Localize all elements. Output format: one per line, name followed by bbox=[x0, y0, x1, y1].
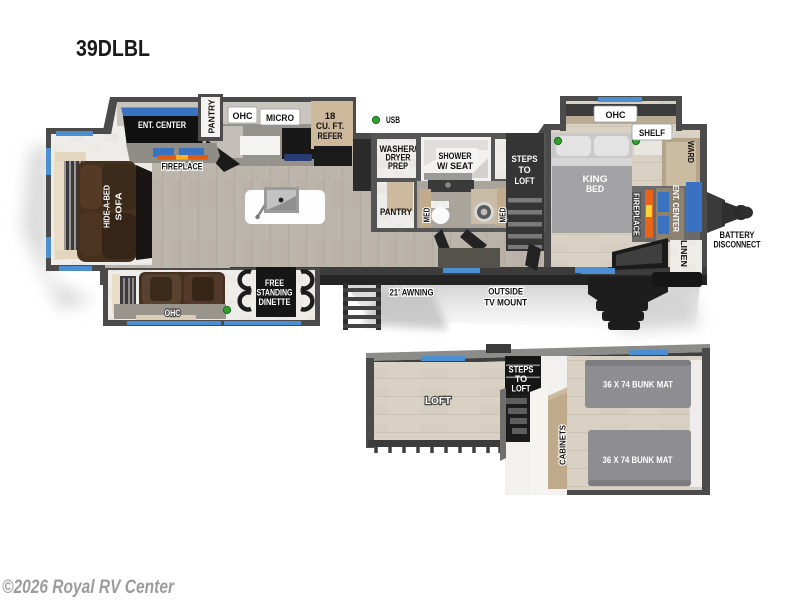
svg-text:FREE: FREE bbox=[265, 278, 284, 288]
svg-text:36 X 74 BUNK MAT: 36 X 74 BUNK MAT bbox=[603, 380, 673, 391]
svg-text:PANTRY: PANTRY bbox=[380, 207, 413, 218]
svg-text:TO: TO bbox=[518, 165, 530, 175]
svg-text:LOFT: LOFT bbox=[515, 176, 535, 186]
svg-text:MICRO: MICRO bbox=[266, 113, 294, 123]
svg-text:LINEN: LINEN bbox=[679, 240, 689, 267]
svg-text:CABINETS: CABINETS bbox=[558, 425, 568, 465]
svg-text:PANTRY: PANTRY bbox=[208, 99, 217, 134]
svg-text:FIREPLACE: FIREPLACE bbox=[632, 193, 642, 236]
svg-text:21' AWNING: 21' AWNING bbox=[390, 288, 434, 299]
svg-text:SOFA: SOFA bbox=[115, 192, 124, 220]
svg-text:WARD: WARD bbox=[686, 141, 696, 163]
svg-text:LOFT: LOFT bbox=[425, 396, 451, 407]
svg-text:STEPS: STEPS bbox=[509, 365, 534, 375]
svg-text:TO: TO bbox=[515, 374, 527, 384]
svg-text:FIREPLACE: FIREPLACE bbox=[162, 162, 203, 173]
svg-text:ENT. CENTER: ENT. CENTER bbox=[671, 185, 680, 232]
svg-text:39DLBL: 39DLBL bbox=[76, 35, 150, 61]
svg-text:BED: BED bbox=[586, 184, 604, 194]
svg-text:TV MOUNT: TV MOUNT bbox=[484, 298, 527, 309]
svg-text:OHC: OHC bbox=[165, 308, 181, 319]
svg-text:PREP: PREP bbox=[388, 161, 409, 172]
svg-text:DISCONNECT: DISCONNECT bbox=[714, 240, 761, 251]
svg-text:SHELF: SHELF bbox=[639, 128, 665, 138]
svg-text:USB: USB bbox=[386, 115, 400, 125]
svg-text:STANDING: STANDING bbox=[257, 288, 293, 298]
svg-text:KING: KING bbox=[583, 174, 608, 184]
svg-text:MED: MED bbox=[422, 208, 432, 223]
svg-text:LOFT: LOFT bbox=[512, 384, 531, 394]
svg-text:W/ SEAT: W/ SEAT bbox=[437, 161, 473, 172]
svg-text:36 X 74 BUNK MAT: 36 X 74 BUNK MAT bbox=[603, 455, 673, 466]
svg-text:STEPS: STEPS bbox=[512, 154, 538, 164]
svg-text:OHC: OHC bbox=[606, 110, 627, 120]
svg-text:ENT. CENTER: ENT. CENTER bbox=[138, 120, 186, 130]
svg-text:REFER: REFER bbox=[318, 131, 343, 142]
svg-text:OUTSIDE: OUTSIDE bbox=[488, 287, 523, 298]
svg-text:OHC: OHC bbox=[233, 111, 254, 121]
svg-text:MED: MED bbox=[498, 208, 508, 223]
svg-text:HIDE-A-BED: HIDE-A-BED bbox=[103, 185, 112, 228]
svg-text:DINETTE: DINETTE bbox=[259, 297, 291, 307]
svg-text:©2026 Royal RV Center: ©2026 Royal RV Center bbox=[2, 577, 175, 598]
